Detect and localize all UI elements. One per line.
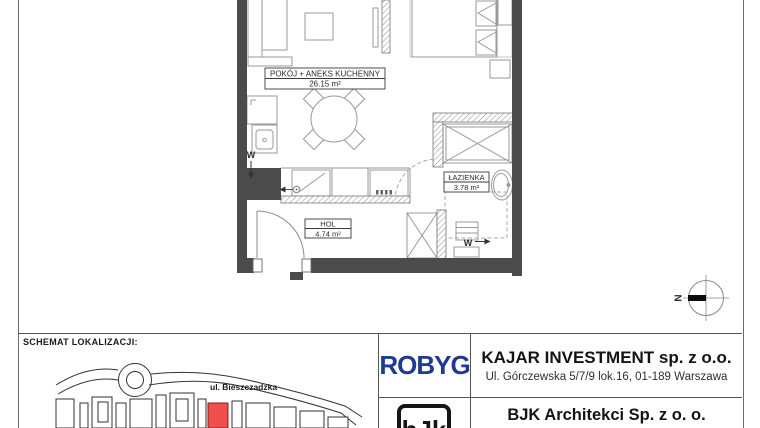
north-compass-icon: N — [674, 275, 730, 321]
room-area: 26.15 m² — [309, 80, 341, 89]
room-area: 3.78 m² — [454, 183, 480, 192]
nightstand-top — [498, 0, 512, 25]
bed — [412, 0, 497, 57]
location-map: ul. Bieszczadzka — [18, 333, 380, 428]
cooktop — [370, 170, 408, 196]
roundabout-outer — [119, 364, 152, 397]
vent-symbol-bathroom: W — [464, 238, 473, 248]
robyg-logo: ROBYG — [379, 350, 469, 381]
site-map-buildings — [56, 393, 348, 428]
room-label-hall: HOL 4.74 m² — [305, 219, 351, 239]
floor-plan: W W POKÓJ + ANEKS KUCHENNY 26.15 m² ŁAZI… — [0, 0, 760, 333]
developer-row: ROBYG KAJAR INVESTMENT sp. z o.o. Ul. Gó… — [379, 333, 742, 397]
architect-logo-cell: bJk — [379, 398, 471, 428]
sofa — [248, 0, 292, 66]
highlighted-building — [208, 403, 228, 428]
furniture — [247, 0, 513, 258]
room-name: ŁAZIENKA — [448, 173, 484, 182]
shower — [443, 124, 512, 163]
street-label: ul. Bieszczadzka — [210, 382, 277, 392]
fridge — [247, 96, 277, 124]
nightstand-bottom — [490, 60, 510, 78]
dining-table — [311, 96, 357, 142]
developer-address: Ul. Górczewska 5/7/9 lok.16, 01-189 Wars… — [486, 371, 728, 383]
north-letter: N — [674, 294, 685, 301]
room-label-bathroom: ŁAZIENKA 3.78 m² — [444, 172, 489, 192]
vent-symbol-kitchen: W — [247, 150, 256, 160]
room-name: POKÓJ + ANEKS KUCHENNY — [270, 70, 381, 79]
title-block-table: ROBYG KAJAR INVESTMENT sp. z o.o. Ul. Gó… — [378, 333, 742, 428]
kitchen-counter — [280, 168, 410, 196]
entrance-threshold — [253, 259, 311, 272]
architect-company-name: BJK Architekci Sp. z o. o. — [471, 398, 742, 428]
developer-logo-cell: ROBYG — [379, 333, 471, 397]
washbasin — [492, 170, 513, 200]
entrance-door — [257, 211, 304, 258]
tv — [373, 8, 378, 47]
roundabout-inner — [127, 372, 144, 389]
room-name: HOL — [320, 220, 335, 229]
room-label-living: POKÓJ + ANEKS KUCHENNY 26.15 m² — [265, 68, 385, 89]
bjk-logo: bJk — [397, 404, 451, 428]
developer-info-cell: KAJAR INVESTMENT sp. z o.o. Ul. Górczews… — [471, 333, 742, 397]
wardrobe — [407, 213, 437, 258]
drawing-sheet: W W POKÓJ + ANEKS KUCHENNY 26.15 m² ŁAZI… — [0, 0, 760, 428]
architect-row: bJk BJK Architekci Sp. z o. o. — [379, 397, 742, 428]
room-area: 4.74 m² — [315, 230, 341, 239]
developer-company-name: KAJAR INVESTMENT sp. z o.o. — [481, 348, 731, 368]
dining-set — [303, 88, 364, 149]
coffee-table — [305, 13, 333, 40]
washing-machine — [252, 125, 277, 153]
